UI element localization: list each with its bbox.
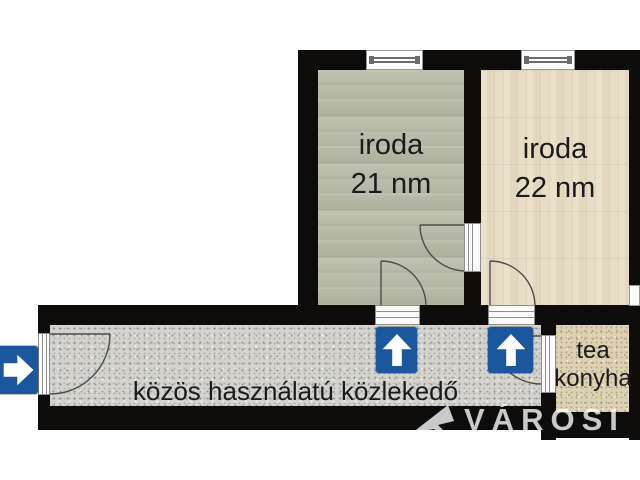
entrance-door-frame [38, 333, 50, 395]
tea-label-line1: tea [541, 337, 640, 365]
tea-kitchen-label: tea konyha [541, 337, 640, 394]
floor-plan: iroda 21 nm iroda 22 nm közös használatú… [0, 0, 640, 480]
inter-office-wall [464, 50, 481, 325]
office-right-door-arrow-sign [488, 327, 533, 373]
room-area: 21 nm [318, 165, 464, 204]
office-right-door-sill [488, 305, 535, 325]
up-arrow-icon [381, 331, 413, 369]
entrance-arrow-sign [0, 346, 38, 394]
room-area: 22 nm [481, 169, 629, 208]
office-left-window [366, 50, 423, 70]
tea-label-line2: konyha [541, 365, 640, 393]
east-wall-window-partial [629, 285, 640, 306]
office-right-label: iroda 22 nm [481, 130, 629, 208]
office-right-window [521, 50, 575, 70]
inter-office-door-frame [464, 223, 481, 272]
window-glazing-icon [525, 57, 571, 63]
office-left-west-wall [298, 50, 318, 325]
right-arrow-icon [2, 353, 36, 387]
office-left-label: iroda 21 nm [318, 126, 464, 204]
office-left-door-arrow-sign [376, 327, 417, 373]
room-name: iroda [481, 130, 629, 169]
corridor-label-text: közös használatú közlekedő [133, 376, 458, 406]
up-arrow-icon [495, 331, 527, 369]
watermark-text: VÁROSI [464, 404, 625, 433]
corridor-north-wall [38, 305, 640, 325]
window-glazing-icon [370, 57, 419, 63]
room-name: iroda [318, 126, 464, 165]
watermark: VÁROSI [410, 404, 640, 433]
watermark-logo-icon [410, 405, 456, 433]
office-left-door-sill [375, 305, 420, 325]
